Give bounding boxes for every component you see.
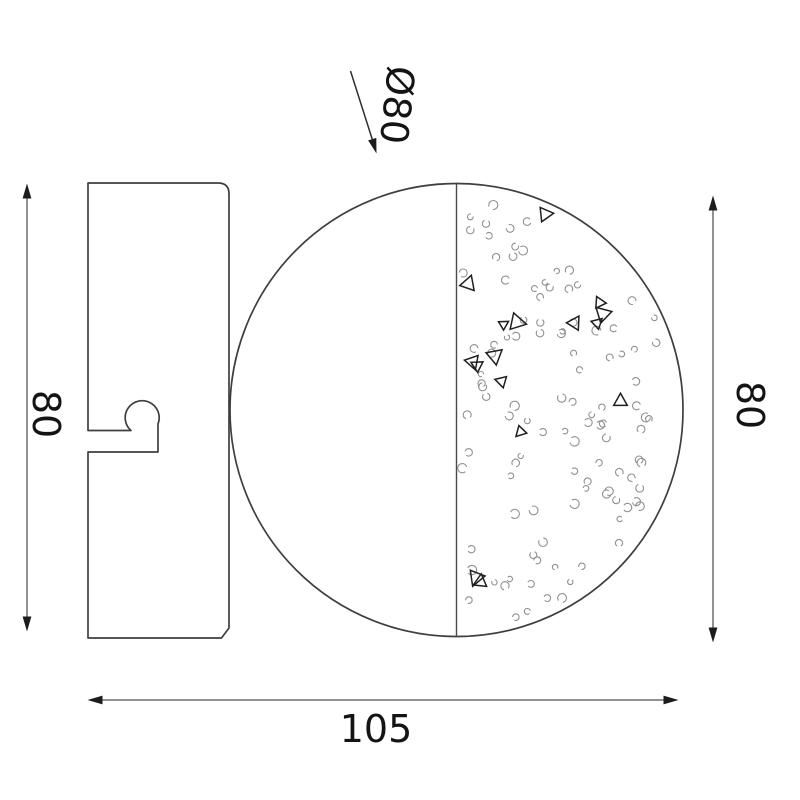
dimension-bottom-width: 105 — [88, 696, 679, 751]
diameter-leader-line — [351, 71, 373, 139]
arrowhead-down-icon — [709, 628, 718, 643]
arrowhead-up-icon — [709, 196, 718, 211]
technical-drawing-canvas: 80 80 105 Ø80 — [0, 0, 800, 800]
dimension-label-diameter: Ø80 — [371, 64, 423, 146]
arrowhead-up-icon — [23, 184, 32, 199]
mounting-bracket-outline — [88, 183, 229, 638]
dimension-label-left-height: 80 — [24, 390, 68, 438]
arrowhead-down-icon — [23, 617, 32, 632]
arrowhead-right-icon — [664, 696, 679, 705]
arrowhead-left-icon — [88, 696, 103, 705]
dimension-label-bottom-width: 105 — [340, 707, 413, 751]
dimension-right-height: 80 — [709, 196, 772, 643]
dimension-left-height: 80 — [23, 184, 68, 632]
diameter-callout: Ø80 — [351, 64, 423, 154]
lamp-dimension-drawing: 80 80 105 Ø80 — [0, 0, 800, 800]
dimension-label-right-height: 80 — [728, 381, 772, 429]
